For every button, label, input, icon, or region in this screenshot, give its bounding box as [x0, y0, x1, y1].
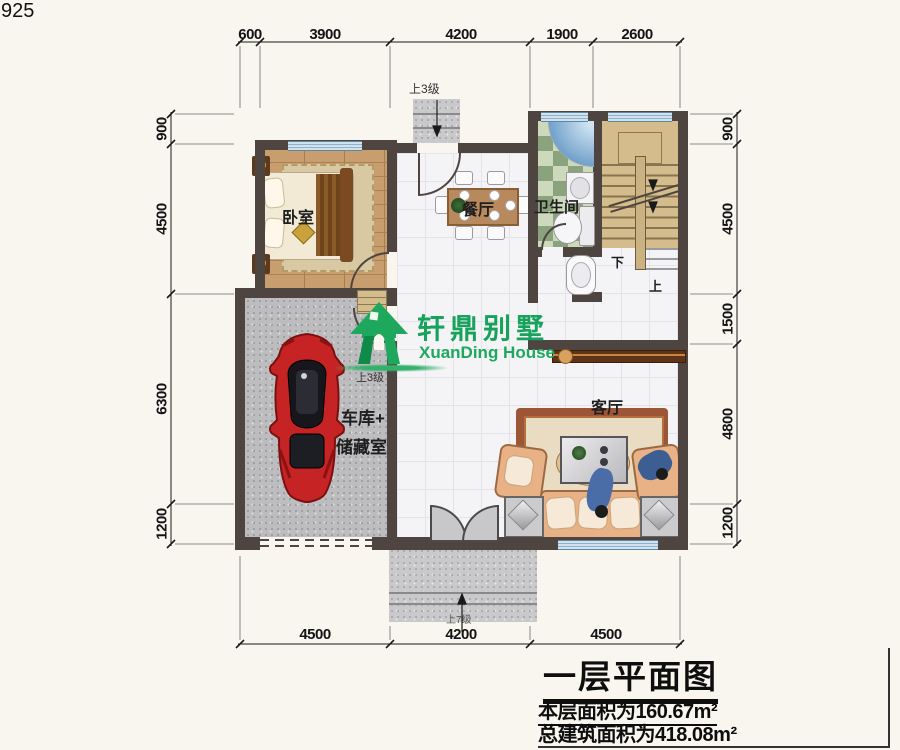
dim-bottom-2: 4200 — [445, 626, 476, 643]
entry-step-line — [413, 127, 460, 129]
garage-south-wall-left — [235, 537, 260, 550]
hall-north-wall-left — [397, 143, 417, 153]
bedroom-window — [288, 141, 362, 151]
stairwell-window — [608, 112, 672, 122]
dining-chair — [455, 171, 473, 185]
dining-label: 餐厅 — [462, 196, 494, 220]
tv-console-stool — [558, 349, 573, 364]
sofa-cushion — [545, 496, 578, 530]
garage-label-line1: 车库+ — [341, 404, 385, 429]
dim-top-5: 2600 — [621, 26, 652, 43]
center-wall-upper — [387, 140, 397, 252]
sheet-border-bottom — [538, 746, 890, 748]
dim-right-4: 4800 — [720, 408, 737, 439]
logo-english-name: XuanDing House — [419, 343, 555, 363]
porch-step-line — [389, 603, 537, 605]
stair-treads-lower — [644, 248, 678, 272]
person-head — [595, 505, 608, 518]
bedroom-west-wall — [255, 140, 265, 298]
sheet-border-right — [888, 648, 890, 748]
washbasin-bowl — [571, 262, 591, 288]
garage-label-line2: 储藏室 — [336, 433, 387, 458]
table-decor — [600, 458, 608, 466]
center-wall-lower — [387, 341, 397, 550]
table-decor — [600, 446, 608, 454]
bedroom-label: 卧室 — [282, 204, 314, 228]
logo-house-icon — [350, 302, 408, 368]
dim-top-3: 4200 — [445, 26, 476, 43]
entry-door-leaf — [418, 153, 420, 194]
plate — [505, 200, 516, 211]
garage-door-dashed-line — [260, 539, 372, 541]
garage-door-dashed-line — [260, 545, 372, 547]
dim-right-2: 4500 — [720, 203, 737, 234]
sheet-corner-code: 925 — [1, 0, 34, 23]
bed-headboard — [340, 168, 353, 262]
dim-left-2: 4500 — [154, 203, 171, 234]
dim-right-1: 900 — [720, 117, 737, 141]
living-room-window — [558, 540, 658, 550]
stair-stringer — [635, 156, 646, 270]
stair-up-label: 上 — [649, 276, 662, 295]
bathroom-window — [541, 112, 588, 122]
garage-west-wall — [235, 288, 245, 550]
bathroom-south-wall-left — [528, 247, 542, 257]
dim-top-2: 3900 — [309, 26, 340, 43]
dim-bottom-1: 4500 — [299, 626, 330, 643]
living-room-label: 客厅 — [591, 394, 623, 418]
front-entry-steps-note: 上7级 — [446, 611, 472, 626]
total-area-text: 总建筑面积为418.08m² — [538, 718, 737, 747]
dim-right-3: 1500 — [720, 303, 737, 334]
logo-chinese-name: 轩鼎别墅 — [417, 307, 549, 347]
red-sports-car — [260, 330, 354, 508]
entry-step-line — [413, 113, 460, 115]
top-entry-steps — [413, 99, 460, 143]
dim-left-1: 900 — [154, 117, 171, 141]
dim-right-5: 1200 — [720, 507, 737, 538]
east-outer-wall — [678, 111, 688, 550]
porch-step-line — [389, 592, 537, 594]
dim-left-3: 6300 — [154, 383, 171, 414]
stair-down-label: 下 — [611, 252, 624, 271]
dining-chair — [455, 226, 473, 240]
dim-left-4: 1200 — [154, 508, 171, 539]
dining-chair — [487, 226, 505, 240]
dim-bottom-3: 4500 — [590, 626, 621, 643]
dim-top-4: 1900 — [546, 26, 577, 43]
bathroom-label: 卫生间 — [534, 196, 579, 217]
person-head — [656, 468, 668, 480]
dining-chair — [487, 171, 505, 185]
sofa-cushion — [609, 496, 641, 530]
hall-north-wall-right — [458, 143, 532, 153]
dim-top-1: 600 — [238, 26, 262, 43]
bed-blanket — [316, 174, 340, 256]
floor-plan-canvas: 925 下 上 — [0, 0, 900, 750]
table-decor-plant — [572, 446, 586, 460]
armchair-cushion — [503, 454, 535, 488]
top-entry-steps-note: 上3级 — [409, 80, 440, 97]
